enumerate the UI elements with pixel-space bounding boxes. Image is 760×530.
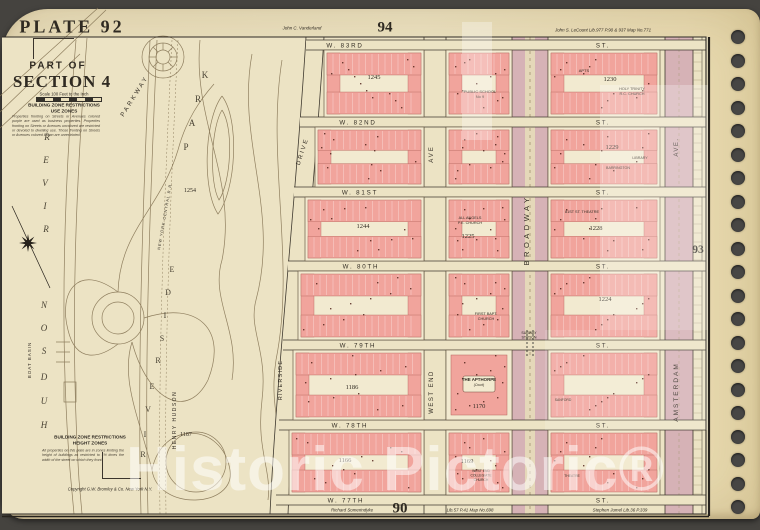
- map-block-C1: 1230APTSHOLY TRINITYR.C. CHURCH: [548, 50, 660, 117]
- binding-hole: [731, 124, 745, 138]
- margin-text-bottom-left: Richard Somerindyke: [331, 508, 373, 513]
- building-label: THEATRE: [564, 474, 580, 478]
- block-number: 1225: [462, 233, 475, 240]
- map-block-A3: 1244: [305, 197, 424, 261]
- adjacent-plate-top: 94: [378, 20, 393, 37]
- label-ave-: AVE.: [674, 137, 680, 156]
- binding-hole: [731, 195, 745, 209]
- street-label-east: ST.: [596, 422, 610, 429]
- street-label: W. 79TH: [340, 342, 377, 349]
- block-number: 1230: [604, 76, 617, 83]
- binding-hole: [731, 77, 745, 91]
- use-zone-note: Properties fronting on Streets or Avenue…: [12, 114, 100, 137]
- park-word-hudson: N: [40, 300, 48, 310]
- street-w-83rd: [306, 40, 706, 50]
- park-word-park: P: [183, 142, 188, 152]
- photo-background: REVIRNOSDUHKRAPEDISREVIR12541187W. 83RDS…: [0, 0, 760, 530]
- map-block-B5: (Court)1170THE APTHORPE: [446, 350, 512, 420]
- binding-hole: [731, 242, 745, 256]
- block-number: 1166: [339, 457, 353, 464]
- margin-text-bottom-right: Stephen Jumel Lib.36 P.339: [593, 508, 648, 513]
- section-part-of: PART OF: [29, 61, 86, 72]
- map-block-A6: 1166: [289, 430, 424, 495]
- building-label: CHURCH: [474, 478, 489, 482]
- binding-hole: [731, 453, 745, 467]
- park-word-park: R: [195, 94, 201, 104]
- map-block-B3: 1225ALL ANGELSP.E. CHURCH: [446, 197, 512, 261]
- park-word-park: K: [202, 70, 209, 80]
- park-word-riverside-arc: R: [140, 450, 146, 459]
- avenue-west-end-ave: [424, 37, 446, 514]
- street-label: W. 78TH: [332, 422, 369, 429]
- scale-bar: [36, 97, 102, 102]
- binding-hole: [731, 101, 745, 115]
- park-word-hudson: D: [40, 372, 48, 382]
- park-word-river: R: [42, 224, 49, 234]
- park-word-riverside-arc: R: [155, 356, 161, 365]
- building-label: APTS: [579, 68, 590, 73]
- binding-hole: [731, 359, 745, 373]
- adjacent-plate-right: 93: [692, 244, 704, 256]
- binding-hole: [731, 218, 745, 232]
- title-bracket: [33, 38, 74, 59]
- binding-hole: [731, 406, 745, 420]
- street-label-east: ST.: [596, 42, 610, 49]
- use-zone-title: BUILDING ZONE RESTRICTIONS: [28, 103, 100, 108]
- binding-hole: [731, 430, 745, 444]
- map-block-B6: 1169WEST ENDCOLLEGIATECHURCH: [446, 430, 512, 495]
- margin-text-bottom-mid: Lib.57 P.41 Map No.698: [447, 508, 494, 513]
- building-label: P.E. CHURCH: [458, 221, 482, 225]
- binding-hole: [731, 383, 745, 397]
- building-label: COLLEGIATE: [470, 474, 492, 478]
- subway-station-label: STATION: [521, 336, 536, 340]
- building-label: BARRINGTON: [606, 166, 630, 170]
- block-number: 1228: [590, 225, 603, 232]
- legend-bracket: [102, 452, 141, 479]
- block-number: 1169: [461, 458, 474, 465]
- park-word-riverside-arc: S: [160, 334, 164, 343]
- park-word-riverside-arc: V: [145, 405, 151, 414]
- park-word-park: A: [189, 118, 196, 128]
- map-block-C5: SANFORD: [548, 350, 660, 420]
- block-number: 1224: [599, 296, 613, 303]
- building-label: WEST END: [472, 469, 490, 473]
- park-word-hudson: U: [41, 396, 48, 406]
- block-number: 1229: [606, 144, 619, 151]
- binding-hole: [731, 265, 745, 279]
- binding-hole: [731, 477, 745, 491]
- map-block-A5: 1186: [293, 350, 424, 420]
- building-label: SANFORD: [555, 398, 572, 402]
- building-label: ALL ANGELS: [459, 216, 482, 220]
- park-word-riverside-arc: I: [164, 311, 167, 320]
- building-label: HOLY TRINITY: [619, 87, 645, 91]
- copyright-line: Copyright G.W. Bromley & Co. New York N.…: [68, 487, 153, 492]
- block-number: 1244: [357, 223, 371, 230]
- map-block-C6: THEATRE: [548, 430, 660, 495]
- street-label: W. 81ST: [342, 189, 378, 196]
- binding-hole: [731, 171, 745, 185]
- street-label: W. 77TH: [328, 497, 365, 504]
- map-block-A4: [298, 271, 424, 340]
- label-ave: AVE: [429, 145, 435, 163]
- label-henry-hudson: HENRY HUDSON: [172, 391, 178, 449]
- label-riverside: RIVERSIDE: [278, 360, 284, 400]
- court-label: (Court): [474, 383, 485, 387]
- height-zone-subtitle: HEIGHT ZONES: [73, 441, 107, 446]
- avenue-amsterdam-ave: [665, 37, 693, 514]
- map-block-B4: FIRST BAPT.CHURCH: [446, 271, 512, 340]
- margin-text-top-right: John S. LeCount Lib.977 P.90 & 937 Map N…: [555, 28, 651, 33]
- label-boat-basin: BOAT BASIN: [27, 342, 32, 379]
- park-word-riverside-arc: D: [165, 288, 171, 297]
- binding-hole: [731, 289, 745, 303]
- street-label: W. 83RD: [326, 42, 363, 49]
- binding-hole: [731, 54, 745, 68]
- street-label-east: ST.: [596, 119, 610, 126]
- map-block-B2: [446, 127, 512, 187]
- plate-title: PLATE 92: [19, 17, 124, 38]
- binding-hole: [731, 312, 745, 326]
- building-label: No 9: [476, 94, 485, 99]
- use-zone-subtitle: USE ZONES: [51, 109, 78, 114]
- map-block-B1: PUBLIC SCHOOLNo 9: [446, 50, 512, 117]
- section-title: SECTION 4: [13, 72, 111, 92]
- street-label: W. 80TH: [343, 263, 380, 270]
- margin-text-top-left: John C. Vanderland: [283, 26, 322, 31]
- street-label-east: ST.: [596, 189, 610, 196]
- label-west-end: WEST END: [429, 370, 435, 414]
- park-word-riverside-arc: E: [170, 265, 175, 274]
- compass-rose: [19, 234, 37, 252]
- binding-hole: [731, 336, 745, 350]
- park-word-riverside-arc: E: [150, 382, 155, 391]
- map-block-A2: [315, 127, 424, 187]
- adjacent-plate-bottom: 90: [393, 501, 408, 518]
- park-word-hudson: S: [42, 346, 47, 356]
- building-label: R.C. CHURCH: [619, 92, 644, 96]
- subway-station-label: SUBWAY: [521, 331, 537, 335]
- street-label-east: ST.: [596, 263, 610, 270]
- map-block-A1: 1245: [324, 50, 424, 117]
- park-word-riverside-arc: I: [144, 430, 147, 439]
- binding-hole: [731, 30, 745, 44]
- map-block-C3: 122881ST ST. THEATRE: [548, 197, 660, 261]
- block-number: 1170: [473, 403, 486, 410]
- label-broadway: BROADWAY: [522, 195, 531, 266]
- street-label: W. 82ND: [339, 119, 376, 126]
- building-label: THE APTHORPE: [462, 377, 496, 382]
- block-number: 1186: [346, 384, 360, 391]
- park-word-river: E: [42, 155, 49, 165]
- building-label: 81ST ST. THEATRE: [565, 210, 599, 214]
- binding-hole: [731, 148, 745, 162]
- park-word-hudson: H: [40, 420, 48, 430]
- label-amsterdam: AMSTERDAM: [673, 362, 680, 422]
- map-block-C4: 1224: [548, 271, 660, 340]
- street-label-east: ST.: [596, 342, 610, 349]
- park-word-hudson: O: [41, 323, 48, 333]
- height-zone-title: BUILDING ZONE RESTRICTIONS: [54, 435, 126, 440]
- binding-hole: [731, 500, 745, 514]
- park-block-number: 1187: [180, 432, 192, 438]
- block-number: 1245: [368, 74, 381, 81]
- park-block-number: 1254: [184, 188, 196, 194]
- building-label: CHURCH: [478, 317, 495, 321]
- building-label: LIBRARY: [632, 156, 648, 160]
- street-label-east: ST.: [596, 497, 610, 504]
- map-block-C2: 1229LIBRARYBARRINGTON: [548, 127, 660, 187]
- building-label: FIRST BAPT.: [475, 312, 498, 316]
- scale-note: Scale 100 Feet to the Inch: [40, 92, 89, 97]
